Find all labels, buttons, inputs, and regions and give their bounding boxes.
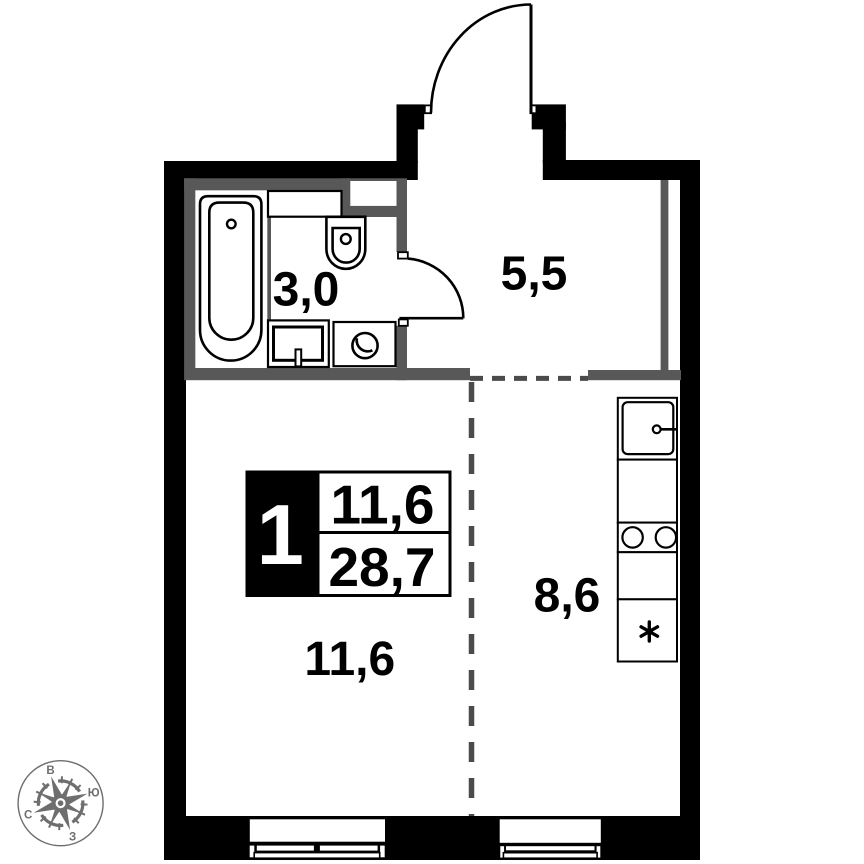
svg-text:11,6: 11,6 (304, 633, 395, 686)
svg-text:Ю: Ю (88, 788, 100, 800)
svg-text:11,6: 11,6 (330, 473, 434, 535)
svg-text:28,7: 28,7 (328, 536, 435, 598)
svg-text:5,5: 5,5 (501, 248, 568, 301)
svg-text:З: З (69, 832, 76, 844)
svg-text:3,0: 3,0 (273, 264, 340, 317)
svg-text:8,6: 8,6 (534, 570, 601, 623)
svg-text:В: В (46, 765, 54, 777)
svg-text:1: 1 (257, 488, 304, 583)
svg-text:С: С (24, 809, 32, 821)
